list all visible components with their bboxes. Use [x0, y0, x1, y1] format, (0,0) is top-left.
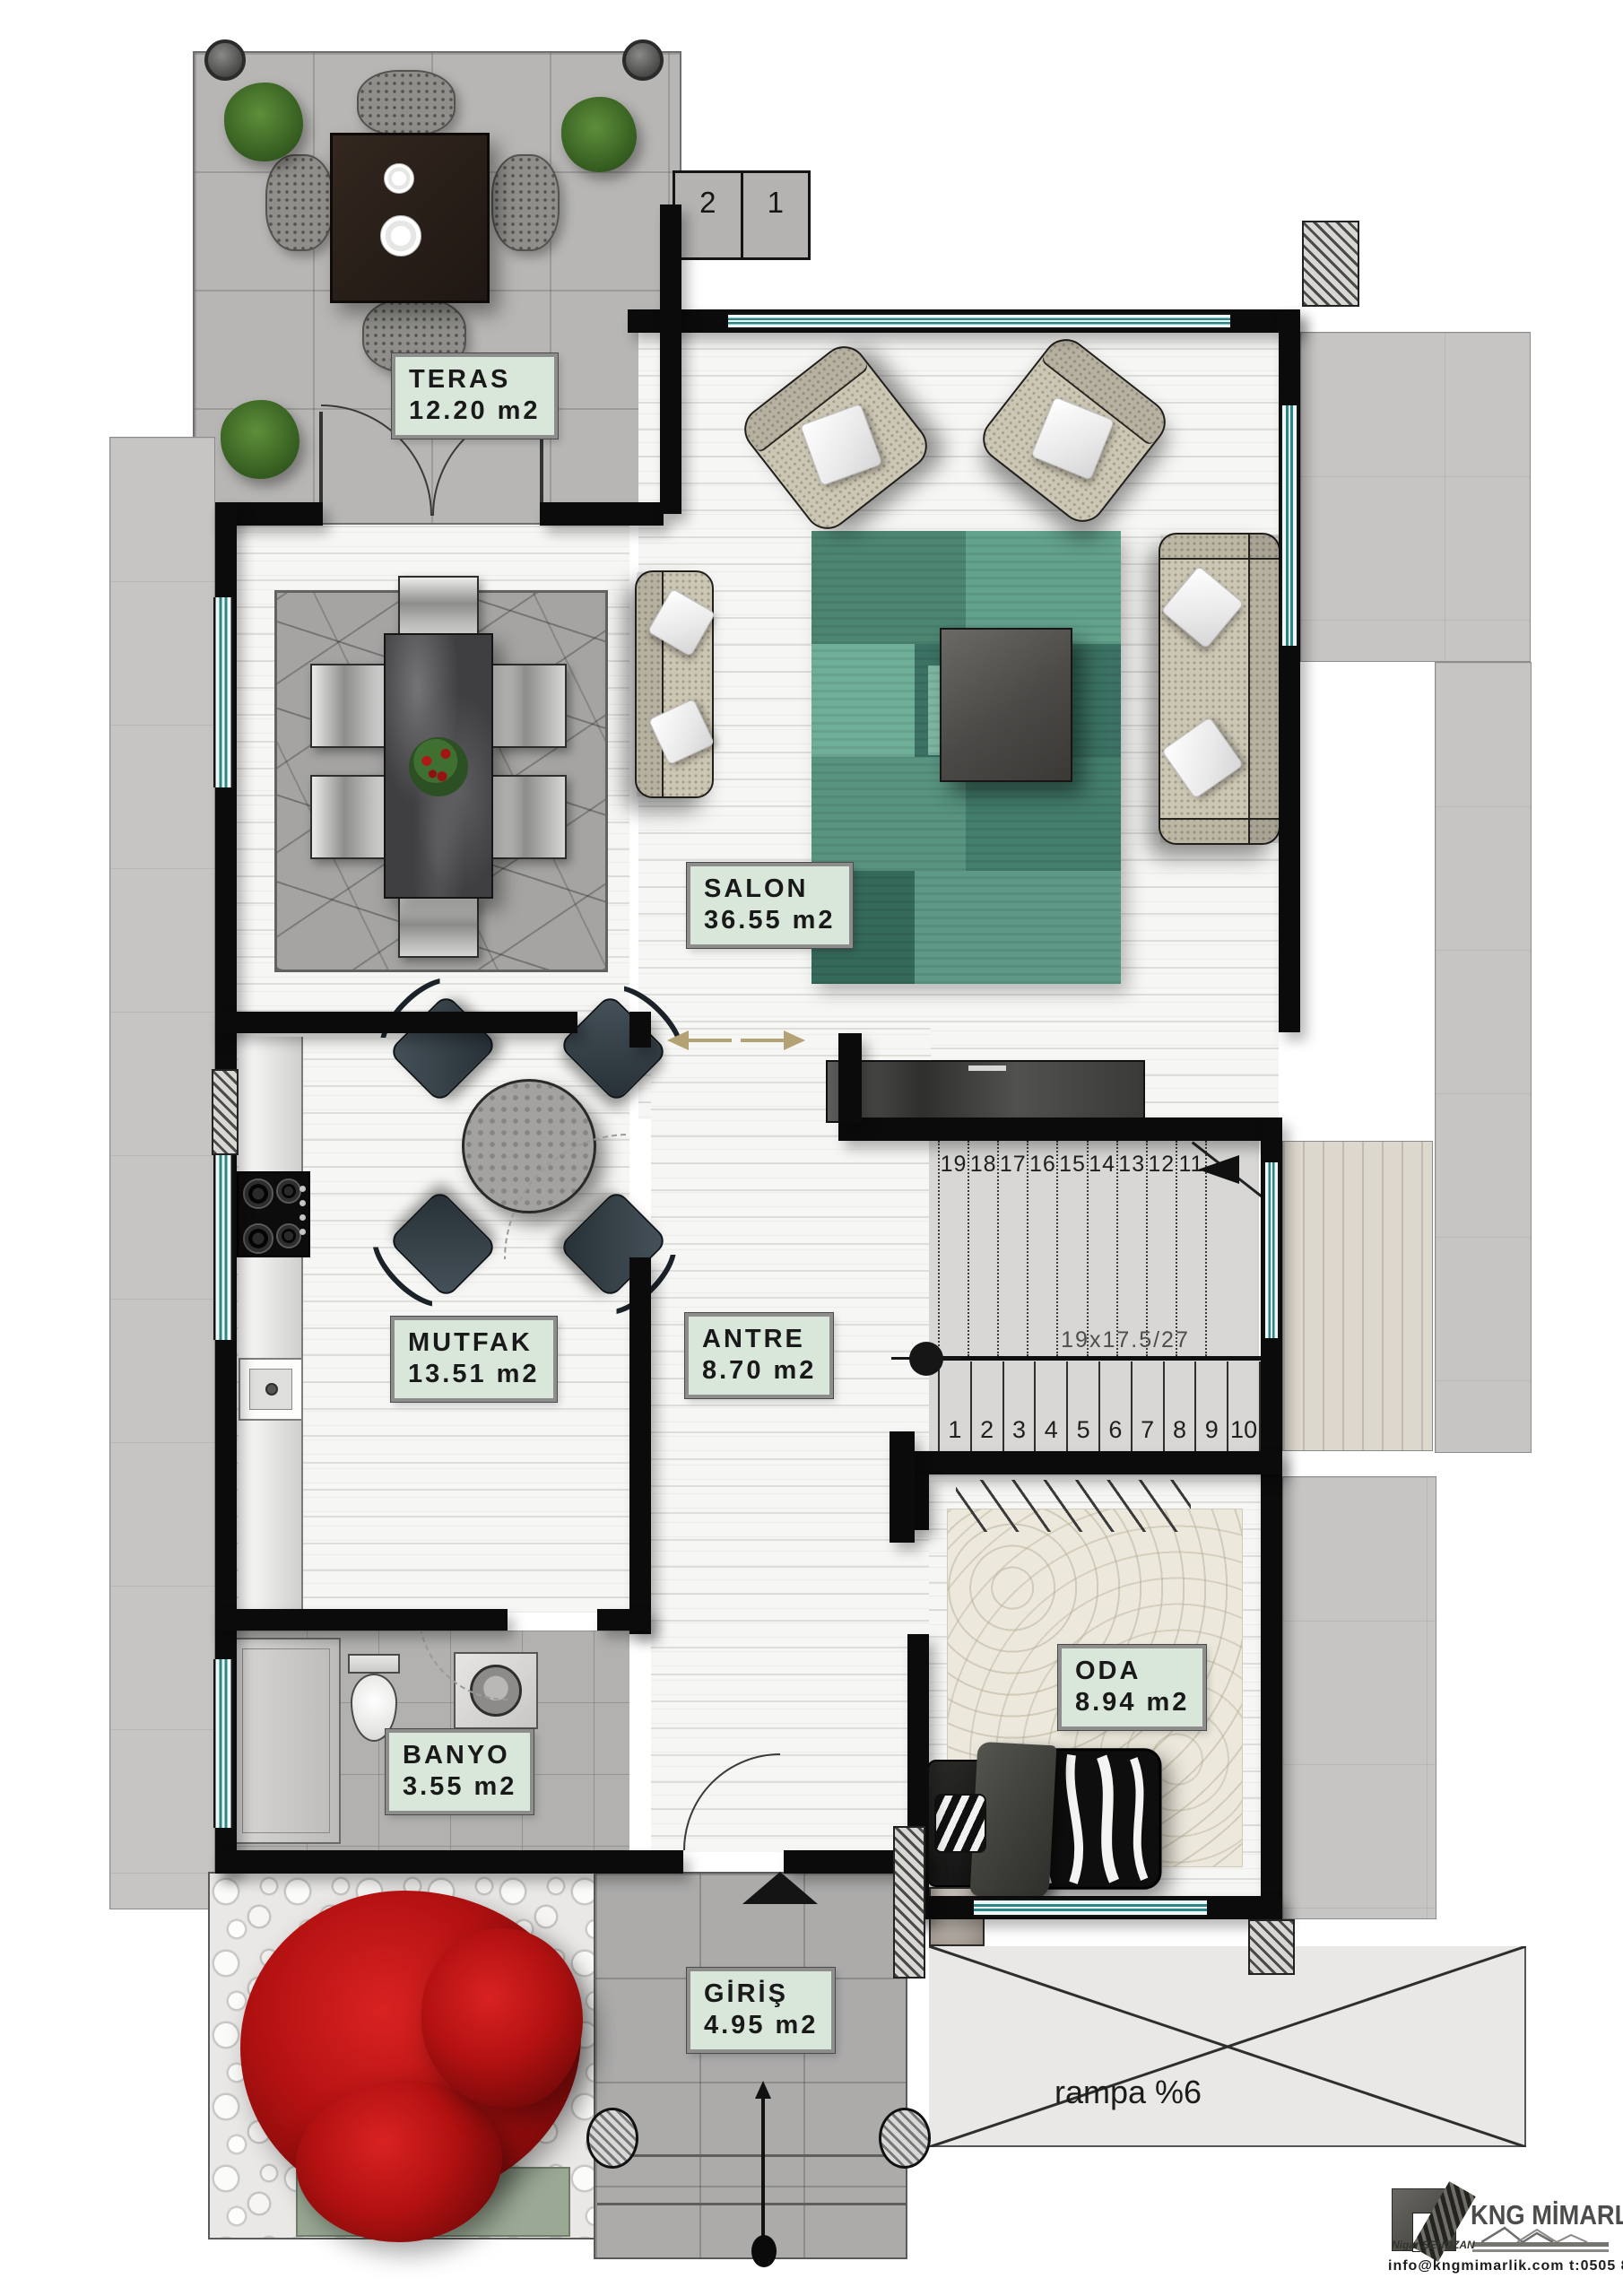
- loveseat-left: [635, 570, 714, 798]
- column-porch-right: [893, 1826, 925, 1979]
- sofa-pillow: [1161, 717, 1244, 799]
- stove-burner: [243, 1178, 273, 1209]
- number-cell: 7: [1133, 1361, 1165, 1451]
- number-cell: 13: [1118, 1141, 1148, 1356]
- window-bedroom-bottom: [974, 1899, 1207, 1917]
- wall: [597, 1609, 651, 1631]
- stove-burner: [276, 1223, 301, 1248]
- number-cell: 6: [1100, 1361, 1133, 1451]
- wall: [215, 1850, 683, 1874]
- sofa-arm: [1160, 818, 1279, 843]
- stove-burner: [276, 1178, 301, 1204]
- dining-chair-right-2: [491, 775, 567, 859]
- site-block-top-right: [1300, 332, 1531, 662]
- stair-dimension-note: 19x17.5/27: [1031, 1327, 1219, 1353]
- porch-step-line: [597, 2154, 906, 2157]
- column-bedroom-corner: [1248, 1919, 1295, 1975]
- stair-mid-rail: [929, 1356, 1261, 1361]
- wall: [629, 1257, 651, 1634]
- terrace-bollard-right: [622, 39, 664, 81]
- shower-inner: [242, 1648, 330, 1833]
- logo-bar: [1472, 2242, 1609, 2247]
- sliding-door-arrow-tail: [741, 1039, 784, 1042]
- room-area: 13.51 m2: [408, 1360, 540, 1389]
- stove-knob: [299, 1214, 306, 1221]
- sofa-right: [1159, 533, 1280, 845]
- room-label-mutfak: MUTFAK 13.51 m2: [391, 1317, 557, 1402]
- wall: [907, 1451, 1282, 1474]
- number-cell: 19: [938, 1141, 969, 1356]
- stove-knob: [299, 1200, 306, 1206]
- entry-porch: [594, 1872, 907, 2259]
- armchair-pillow: [800, 404, 882, 486]
- ramp-cross-lines: [929, 1946, 1526, 2147]
- wall: [215, 1609, 508, 1631]
- room-name: MUTFAK: [408, 1328, 540, 1358]
- toilet-tank: [348, 1654, 400, 1674]
- window-salon-top: [728, 313, 1230, 329]
- site-strip-left: [109, 437, 215, 1909]
- number-cell: 2: [675, 173, 743, 257]
- entry-arrow-head: [755, 2081, 771, 2099]
- site-strip-right: [1435, 662, 1532, 1453]
- ramp-label: rampa %6: [1055, 2074, 1202, 2111]
- number-cell: 1: [743, 173, 809, 257]
- loveseat-back: [637, 572, 664, 796]
- wall: [838, 1033, 862, 1123]
- room-area: 4.95 m2: [704, 2011, 818, 2040]
- terrace-chair-top: [357, 70, 456, 136]
- dining-chair-top: [398, 576, 479, 637]
- terrace-chair-right: [491, 154, 560, 251]
- column-salon-top-right: [1302, 221, 1359, 307]
- terrace-plate-large: [380, 215, 421, 257]
- stair-lower-run: 12345678910: [938, 1361, 1261, 1451]
- number-cell: 18: [969, 1141, 999, 1356]
- stove-burner: [243, 1223, 273, 1254]
- tv-console: [826, 1060, 1145, 1123]
- site-strip-oda-right: [1282, 1476, 1436, 1919]
- room-name: GİRİŞ: [704, 1979, 818, 2009]
- stove-knob: [299, 1229, 306, 1235]
- number-cell: 8: [1165, 1361, 1197, 1451]
- terrace-plate-small: [384, 163, 414, 194]
- plant-terrace-top-right: [561, 97, 637, 172]
- number-cell: 4: [1036, 1361, 1068, 1451]
- entry-arrow-dot: [751, 2235, 777, 2267]
- number-cell: 3: [1004, 1361, 1037, 1451]
- stair-newel-post: [909, 1342, 943, 1376]
- wall: [838, 1118, 1264, 1141]
- kitchen-counter: [239, 1037, 303, 1614]
- number-cell: 14: [1089, 1141, 1118, 1356]
- kitchen-sink: [239, 1358, 303, 1421]
- porch-planter-left: [586, 2108, 638, 2169]
- window-salon-right: [1280, 405, 1298, 646]
- exterior-entry-steps: 21: [673, 170, 811, 260]
- room-name: BANYO: [403, 1741, 516, 1770]
- coffee-table: [940, 628, 1072, 782]
- number-cell: 2: [972, 1361, 1004, 1451]
- porch-step-line: [597, 2203, 906, 2205]
- rug-patch: [811, 644, 915, 757]
- sofa-back: [1248, 535, 1279, 843]
- wall: [629, 1012, 651, 1048]
- number-cell: 5: [1068, 1361, 1100, 1451]
- dining-centerpiece: [409, 737, 468, 796]
- dining-chair-left-2: [310, 775, 386, 859]
- logo-bar: [1472, 2249, 1609, 2252]
- number-cell: 1: [938, 1361, 972, 1451]
- kitchen-faucet: [265, 1383, 278, 1396]
- room-name: TERAS: [409, 365, 541, 395]
- sliding-door-arrow-tail: [689, 1039, 732, 1042]
- room-area: 8.94 m2: [1075, 1688, 1189, 1718]
- number-cell: 17: [999, 1141, 1028, 1356]
- dining-chair-bottom: [398, 897, 479, 958]
- number-cell: 15: [1058, 1141, 1088, 1356]
- terrace-bollard-left: [204, 39, 246, 81]
- room-name: ANTRE: [702, 1325, 816, 1354]
- plant-terrace-left: [221, 400, 299, 479]
- wall: [1261, 1476, 1282, 1919]
- tv-console-handle: [968, 1065, 1006, 1071]
- section-slash-marks: [956, 1480, 1191, 1532]
- zebra-pillow: [934, 1794, 986, 1853]
- logo-contact: info@kngmimarlik.com t:0505 806 91 67: [1388, 2258, 1623, 2274]
- dining-chair-right-1: [491, 664, 567, 748]
- window-bath-left: [213, 1659, 233, 1828]
- terrace-chair-left: [265, 154, 334, 251]
- room-area: 36.55 m2: [704, 906, 836, 935]
- floor-plan: rampa %6 21: [0, 0, 1623, 2296]
- number-cell: 9: [1196, 1361, 1228, 1451]
- stove: [237, 1171, 310, 1257]
- wall: [660, 204, 681, 514]
- stair-side-landing: [1282, 1141, 1433, 1451]
- room-label-salon: SALON 36.55 m2: [687, 863, 853, 948]
- entry-canopy-marker: [742, 1872, 818, 1904]
- room-area: 8.70 m2: [702, 1356, 816, 1386]
- dining-chair-left-1: [310, 664, 386, 748]
- ramp-area: [929, 1946, 1526, 2147]
- room-label-antre: ANTRE 8.70 m2: [685, 1313, 833, 1398]
- wall: [890, 1431, 915, 1543]
- window-stair-right: [1263, 1162, 1280, 1338]
- room-area: 12.20 m2: [409, 396, 541, 426]
- room-label-giris: GİRİŞ 4.95 m2: [687, 1968, 835, 2053]
- room-label-banyo: BANYO 3.55 m2: [386, 1729, 534, 1814]
- room-area: 3.55 m2: [403, 1772, 516, 1802]
- stair-upper-run: 191817161514131211: [938, 1141, 1207, 1356]
- number-cell: 16: [1028, 1141, 1058, 1356]
- room-label-teras: TERAS 12.20 m2: [392, 353, 558, 439]
- number-cell: 12: [1148, 1141, 1177, 1356]
- logo-signature: Nigar ŞENOZAN: [1392, 2239, 1475, 2251]
- terrace-door-leaf-left: [319, 412, 323, 516]
- sofa-arm: [1160, 535, 1279, 560]
- room-label-oda: ODA 8.94 m2: [1058, 1645, 1206, 1730]
- red-tree-blob-3: [421, 1928, 583, 2108]
- shower-unit: [231, 1638, 341, 1844]
- logo-mountains-icon: [1481, 2226, 1598, 2244]
- plant-terrace-top-left: [224, 83, 303, 161]
- wall: [540, 502, 664, 526]
- porch-planter-right: [879, 2108, 931, 2169]
- wall: [215, 1012, 577, 1033]
- window-dining-left: [213, 597, 233, 787]
- rug-patch: [915, 871, 1121, 984]
- sliding-door-arrow-right: [784, 1031, 805, 1050]
- sofa-pillow: [1161, 566, 1245, 649]
- stove-knob: [299, 1186, 306, 1192]
- room-name: ODA: [1075, 1657, 1189, 1686]
- number-cell: 10: [1228, 1361, 1261, 1451]
- column-kitchen-left: [212, 1069, 239, 1155]
- sliding-door-arrow-left: [667, 1031, 689, 1050]
- room-name: SALON: [704, 874, 836, 904]
- stair-direction-arrow: [1198, 1155, 1239, 1184]
- entry-arrow-shaft: [761, 2097, 765, 2237]
